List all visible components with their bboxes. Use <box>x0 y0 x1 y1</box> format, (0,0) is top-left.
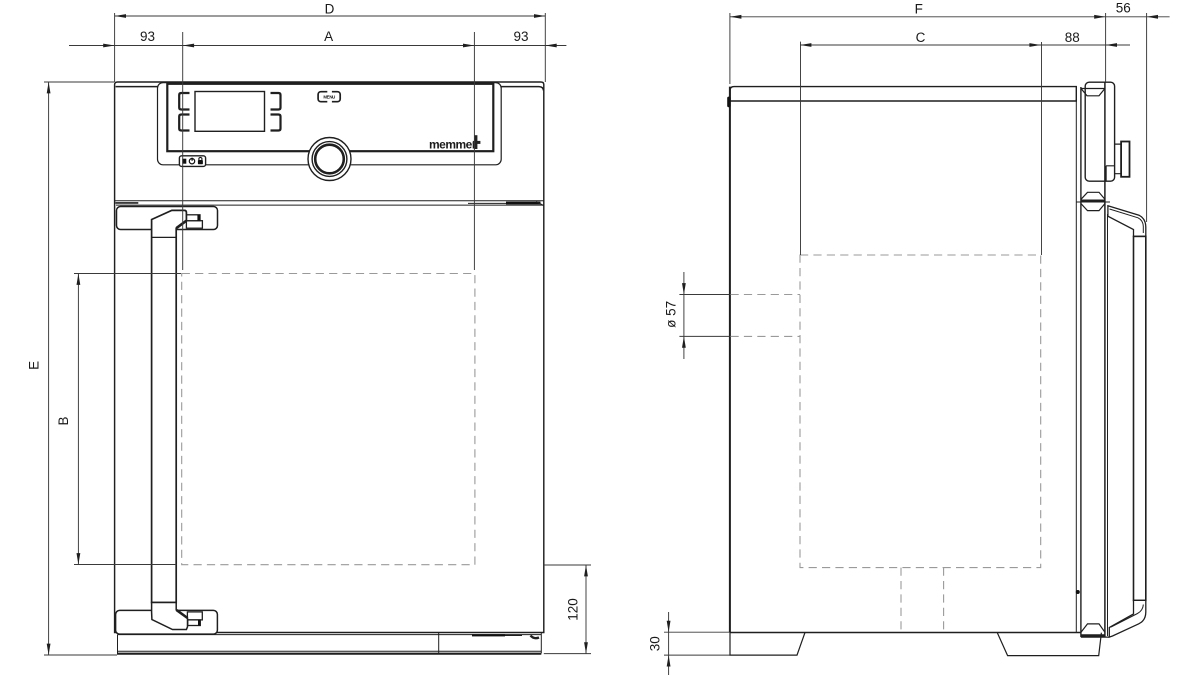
svg-text:93: 93 <box>513 29 528 44</box>
svg-text:memmer: memmer <box>429 138 477 152</box>
svg-text:A: A <box>324 29 333 44</box>
svg-text:D: D <box>325 2 335 17</box>
svg-text:ø 57: ø 57 <box>664 301 679 328</box>
svg-text:120: 120 <box>566 598 581 621</box>
svg-text:B: B <box>56 416 71 425</box>
svg-text:30: 30 <box>648 636 663 651</box>
svg-text:MENU: MENU <box>323 95 335 100</box>
svg-text:56: 56 <box>1116 1 1131 16</box>
svg-text:C: C <box>916 30 926 45</box>
svg-text:F: F <box>915 2 923 17</box>
svg-text:93: 93 <box>140 29 155 44</box>
svg-text:E: E <box>27 361 42 370</box>
svg-text:88: 88 <box>1065 30 1080 45</box>
